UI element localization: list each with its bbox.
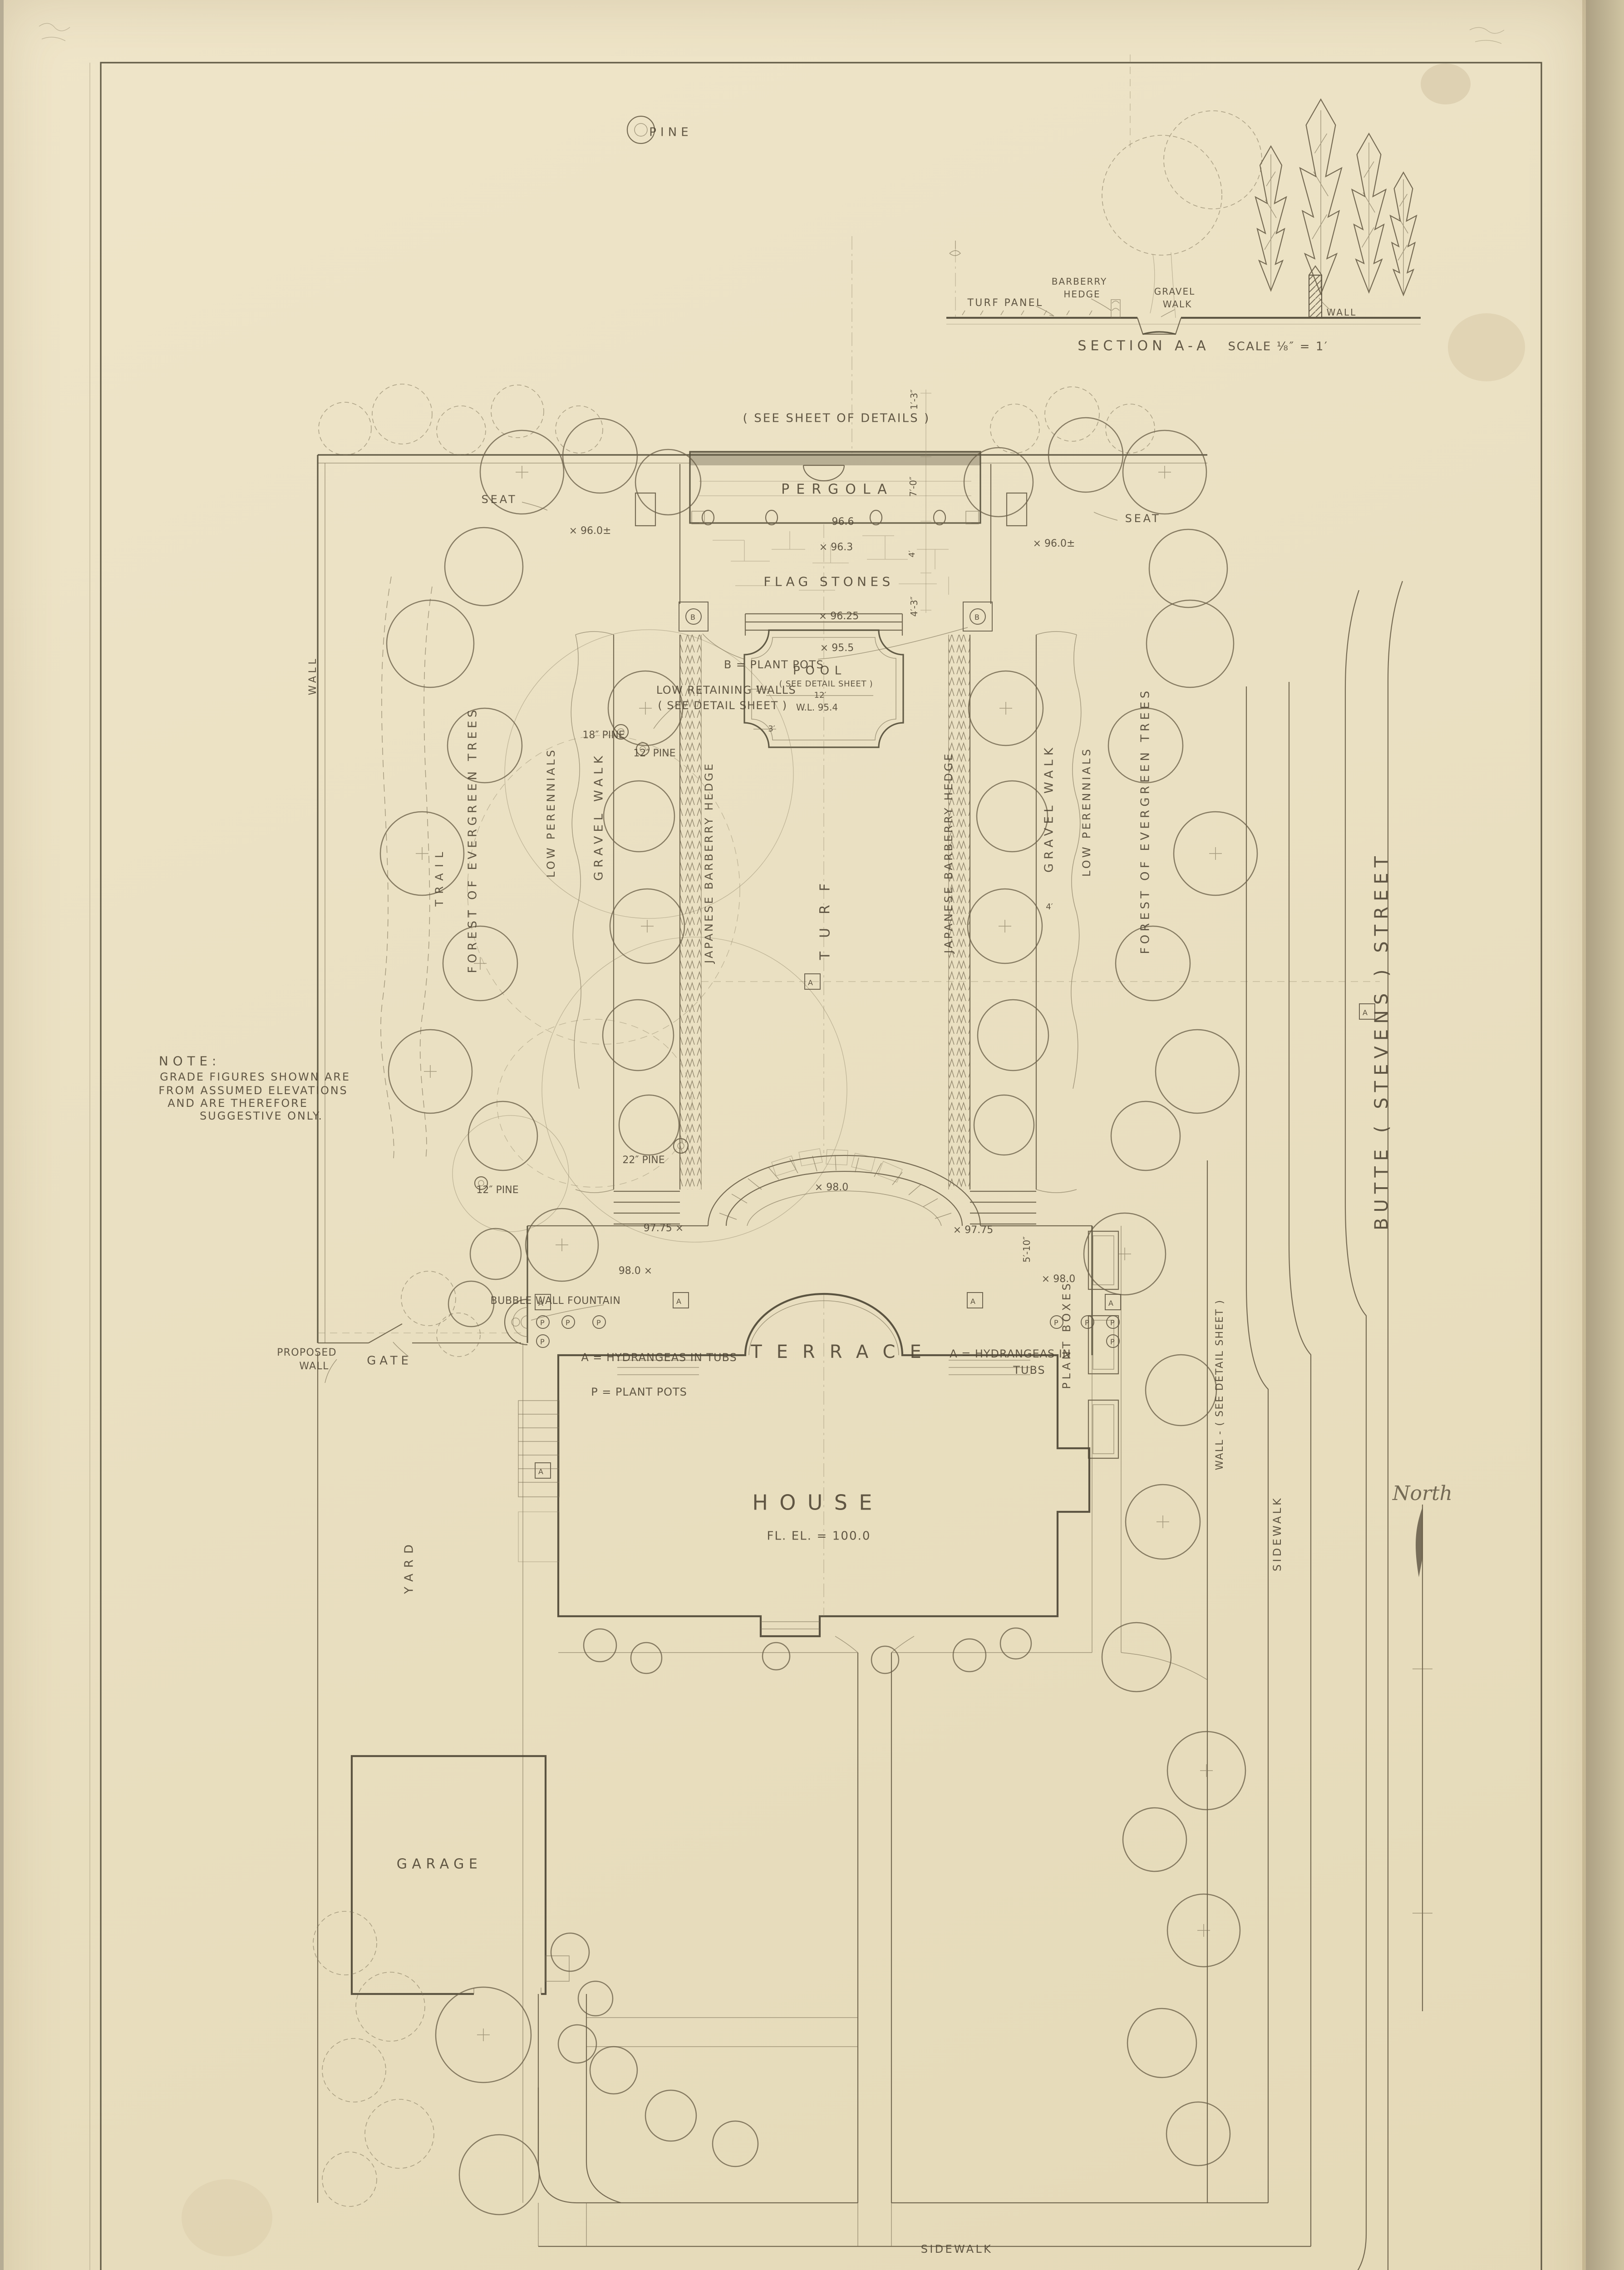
dim-4: 4′ xyxy=(908,550,917,558)
scanned-plan-sheet: B B xyxy=(0,0,1624,2270)
dim-4-walk: 4′ xyxy=(1046,903,1053,912)
hydrangeas-legend-east-line2: TUBS xyxy=(1013,1364,1045,1376)
dim-1-3: 1′-3″ xyxy=(909,390,919,410)
proposed-wall-line2: WALL xyxy=(299,1361,329,1372)
note-line: SUGGESTIVE ONLY. xyxy=(200,1110,323,1122)
gate-label: GATE xyxy=(367,1355,412,1368)
pool-dim-12: 12′ xyxy=(814,691,827,700)
house-floor-elevation: FL. EL. = 100.0 xyxy=(767,1530,871,1543)
trail-label: TRAIL xyxy=(433,846,445,906)
pine-12: 12″ PINE xyxy=(633,748,675,759)
plan-annotations-layer: PINETURF PANELBARBERRYHEDGEGRAVELWALKWAL… xyxy=(0,0,1624,2270)
seat-label-east: SEAT xyxy=(1125,513,1161,524)
elev-96-0-west: × 96.0± xyxy=(569,526,611,537)
sidewalk-label-east: SIDEWALK xyxy=(1271,1496,1283,1571)
note-line: GRADE FIGURES SHOWN ARE xyxy=(160,1071,350,1083)
plant-boxes-label: PLANT BOXES xyxy=(1061,1280,1073,1389)
pool-dim-3: 3′ xyxy=(768,725,775,734)
street-label-east: BUTTE ( STEVENS ) STREET xyxy=(1372,851,1392,1230)
dim-5-10: 5′-10″ xyxy=(1022,1236,1032,1262)
forest-label-east: FOREST OF EVERGREEN TREES xyxy=(1139,687,1152,954)
see-sheet-of-details: ( SEE SHEET OF DETAILS ) xyxy=(743,412,930,425)
pool-label: POOL xyxy=(793,665,846,678)
elev-96-3: × 96.3 xyxy=(819,542,853,553)
note-line: FROM ASSUMED ELEVATIONS xyxy=(158,1085,348,1096)
pool-water-level: W.L. 95.4 xyxy=(796,702,838,712)
section-aa-caption: SECTION A-A xyxy=(1078,339,1210,354)
turf-panel-label: TURF PANEL xyxy=(968,298,1043,309)
yard-label: YARD xyxy=(403,1539,416,1594)
note-heading: NOTE: xyxy=(159,1055,221,1069)
gravel-walk-west: GRAVEL WALK xyxy=(593,752,606,881)
wall-label-aa: WALL xyxy=(1327,307,1357,317)
note-line: AND ARE THEREFORE xyxy=(167,1097,308,1109)
elev-96-25: × 96.25 xyxy=(819,611,859,622)
house-label: HOUSE xyxy=(752,1491,883,1515)
elev-98-0-west: 98.0 × xyxy=(619,1266,652,1277)
dim-7-0: 7′-0″ xyxy=(908,477,918,497)
seat-label-west: SEAT xyxy=(482,493,517,505)
flagstones-label: FLAG STONES xyxy=(763,575,894,589)
hedge-label-west: JAPANESE BARBERRY HEDGE xyxy=(703,762,715,963)
terrace-label: TERRACE xyxy=(751,1342,936,1362)
barberry-hedge-label-line2: HEDGE xyxy=(1063,289,1100,299)
elev-97-75-west: 97.75 × xyxy=(644,1223,684,1234)
gravel-walk-aa-line2: WALK xyxy=(1163,299,1192,309)
elev-97-75-east: × 97.75 xyxy=(953,1225,993,1236)
low-perennials-east: LOW PERENNIALS xyxy=(1081,747,1093,877)
low-retaining-walls-line2: ( SEE DETAIL SHEET ) xyxy=(658,700,787,711)
turf-label: TURF xyxy=(818,870,833,960)
pool-detail-note: ( SEE DETAIL SHEET ) xyxy=(779,680,873,689)
section-aa-scale: SCALE ⅛″ = 1′ xyxy=(1228,340,1328,354)
proposed-wall-line1: PROPOSED xyxy=(277,1347,337,1358)
plant-pots-legend-terrace: P = PLANT POTS xyxy=(591,1386,687,1398)
gravel-walk-east: GRAVEL WALK xyxy=(1043,744,1056,873)
elev-96-0-east: × 96.0± xyxy=(1033,538,1075,549)
hydrangeas-legend-east-line1: A = HYDRANGEAS IN xyxy=(950,1348,1071,1360)
low-perennials-west: LOW PERENNIALS xyxy=(545,748,557,878)
hydrangeas-legend-west: A = HYDRANGEAS IN TUBS xyxy=(581,1352,737,1363)
bubble-wall-fountain-label: BUBBLE WALL FOUNTAIN xyxy=(490,1296,620,1307)
garage-label: GARAGE xyxy=(397,1857,482,1872)
pine-label: PINE xyxy=(649,126,693,139)
barberry-hedge-label-line1: BARBERRY xyxy=(1052,276,1107,286)
pergola-label: PERGOLA xyxy=(781,482,894,497)
gravel-walk-aa-line1: GRAVEL xyxy=(1154,286,1195,296)
wall-detail-label: WALL - ( SEE DETAIL SHEET ) xyxy=(1215,1299,1225,1470)
pine-22: 22″ PINE xyxy=(622,1155,664,1166)
pool-dim-1: 1′ xyxy=(755,685,763,694)
elev-95-5: × 95.5 xyxy=(820,643,854,654)
pine-12-south: 12″ PINE xyxy=(476,1185,518,1196)
elev-98-0-center: × 98.0 xyxy=(815,1182,848,1193)
wall-label-west: WALL xyxy=(308,656,319,696)
hedge-label-east: JAPANESE BARBERRY HEDGE xyxy=(943,752,955,953)
pine-18: 18″ PINE xyxy=(582,730,625,741)
north-label: North xyxy=(1393,1483,1452,1505)
dim-4-3: 4′-3″ xyxy=(909,597,919,617)
sidewalk-label-south: SIDEWALK xyxy=(921,2243,993,2255)
low-retaining-walls-line1: LOW RETAINING WALLS xyxy=(656,684,796,696)
elev-96-6: 96.6 xyxy=(832,517,854,528)
forest-label-west: FOREST OF EVERGREEN TREES xyxy=(467,706,480,973)
